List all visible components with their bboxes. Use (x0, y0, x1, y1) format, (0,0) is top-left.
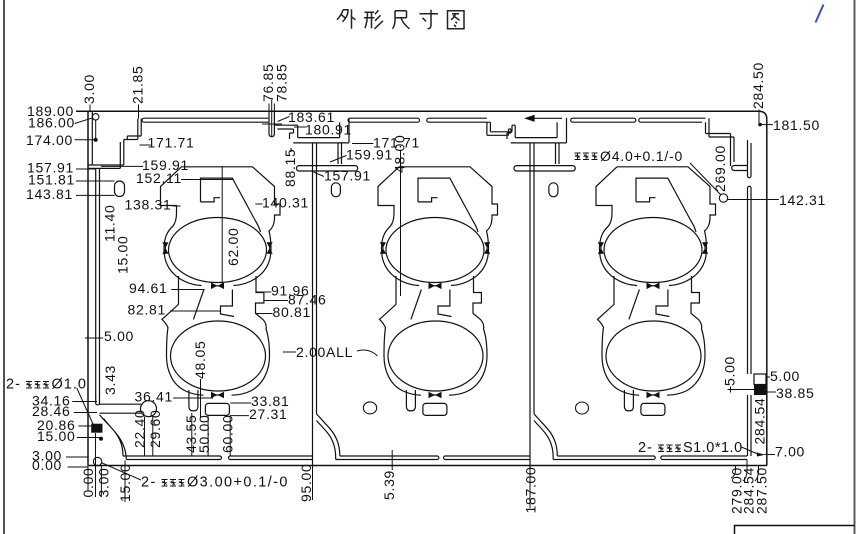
svg-text:3.00: 3.00 (81, 74, 97, 104)
svg-text:2-: 2- (141, 475, 157, 491)
svg-text:15.00: 15.00 (37, 428, 76, 444)
svg-text:3.00: 3.00 (96, 467, 112, 497)
svg-text:3.43: 3.43 (102, 365, 118, 395)
svg-text:186.00: 186.00 (28, 115, 75, 131)
svg-text:27.31: 27.31 (249, 406, 288, 422)
svg-text:22.40: 22.40 (132, 409, 148, 448)
svg-text:38.85: 38.85 (776, 385, 815, 401)
svg-text:143.81: 143.81 (26, 186, 73, 202)
svg-text:78.85: 78.85 (274, 63, 290, 102)
svg-text:5.00: 5.00 (722, 356, 738, 386)
svg-text:2-: 2- (6, 377, 21, 393)
svg-text:0.00: 0.00 (32, 457, 62, 473)
svg-text:95.00: 95.00 (298, 463, 314, 502)
svg-text:48.05: 48.05 (192, 340, 208, 379)
svg-text:287.50: 287.50 (754, 467, 770, 514)
svg-text:159.91: 159.91 (346, 147, 393, 163)
svg-text:36.41: 36.41 (135, 389, 174, 405)
svg-text:180.91: 180.91 (305, 122, 352, 138)
svg-text:269.00: 269.00 (712, 145, 728, 192)
svg-text:5.39: 5.39 (381, 470, 397, 500)
svg-text:181.50: 181.50 (773, 117, 820, 133)
svg-text:82.81: 82.81 (128, 302, 167, 318)
svg-text:2.00ALL: 2.00ALL (296, 344, 353, 360)
svg-text:5.00: 5.00 (770, 368, 800, 384)
svg-text:S1.0*1.0: S1.0*1.0 (683, 440, 743, 456)
svg-text:138.31: 138.31 (125, 197, 172, 213)
svg-text:21.85: 21.85 (130, 65, 146, 104)
svg-text:284.50: 284.50 (750, 62, 766, 109)
svg-text:187.00: 187.00 (523, 466, 539, 513)
svg-text:15.00: 15.00 (115, 235, 131, 274)
svg-text:157.91: 157.91 (324, 168, 371, 184)
svg-text:62.00: 62.00 (225, 227, 241, 266)
svg-text:48.00: 48.00 (392, 134, 408, 173)
svg-text:140.31: 140.31 (262, 195, 309, 211)
svg-text:88.15: 88.15 (282, 148, 298, 187)
svg-text:80.81: 80.81 (273, 304, 312, 320)
svg-text:Ø3.00+0.1/-0: Ø3.00+0.1/-0 (187, 475, 289, 491)
svg-text:50.00: 50.00 (196, 414, 212, 453)
svg-text:60.00: 60.00 (220, 414, 236, 453)
svg-text:94.61: 94.61 (129, 280, 168, 296)
svg-text:5.00: 5.00 (104, 328, 134, 344)
svg-text:142.31: 142.31 (779, 192, 826, 208)
svg-text:174.00: 174.00 (26, 132, 73, 148)
svg-text:171.71: 171.71 (148, 135, 195, 151)
svg-text:Ø1.0: Ø1.0 (52, 377, 87, 393)
svg-text:15.00: 15.00 (117, 463, 133, 502)
svg-text:Ø4.0+0.1/-0: Ø4.0+0.1/-0 (600, 148, 683, 164)
svg-text:7.00: 7.00 (775, 444, 805, 460)
svg-text:0.00: 0.00 (80, 467, 96, 497)
svg-text:284.54: 284.54 (752, 397, 768, 444)
svg-text:29.60: 29.60 (147, 409, 163, 448)
svg-text:152.11: 152.11 (136, 170, 182, 186)
svg-text:2-: 2- (638, 440, 653, 456)
